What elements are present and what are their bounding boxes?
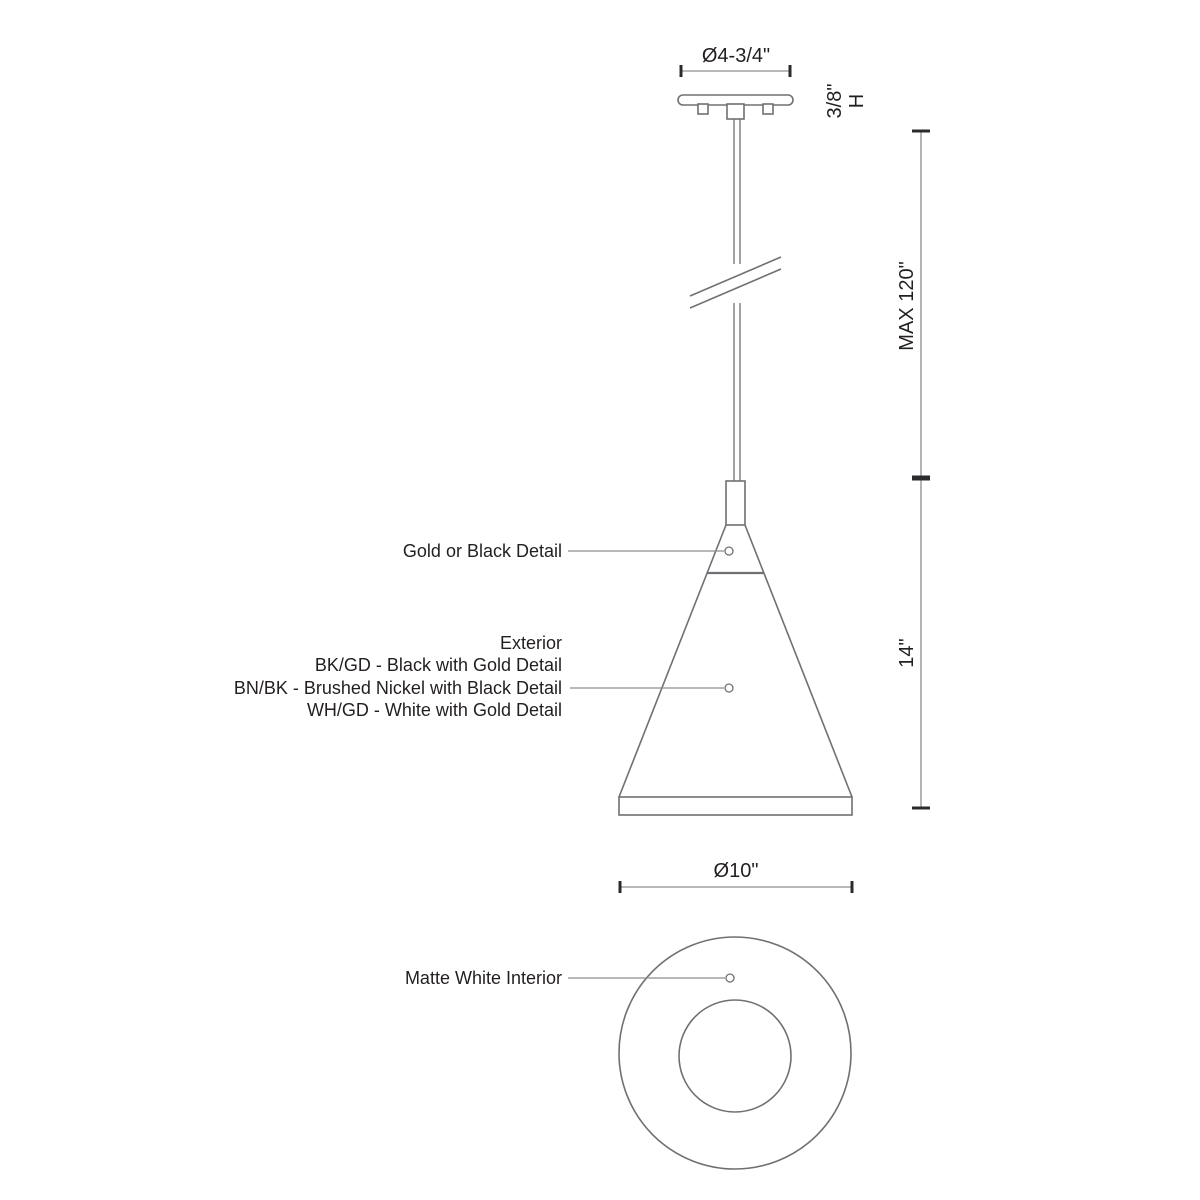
outer-rim-circle: [619, 937, 851, 1169]
exterior-callout: Exterior BK/GD - Black with Gold Detail …: [234, 633, 733, 720]
interior-callout-label: Matte White Interior: [405, 968, 562, 988]
leader-dot: [725, 547, 733, 555]
canopy-height-dimension: 3/8" H: [824, 84, 868, 119]
shade-height-label: 14": [896, 638, 918, 667]
pendant-dimension-drawing: Ø4-3/4" 3/8" H: [0, 0, 1200, 1200]
ceiling-canopy: [678, 95, 793, 119]
canopy-screw-right: [763, 104, 773, 114]
canopy-diameter-dimension: Ø4-3/4": [681, 45, 790, 77]
suspension-cord: [690, 119, 781, 481]
interior-callout: Matte White Interior: [405, 968, 734, 988]
inner-opening-circle: [679, 1000, 791, 1112]
shade-diameter-dimension: Ø10": [620, 860, 852, 893]
shade-side-view: [619, 481, 852, 815]
leader-dot: [726, 974, 734, 982]
cord-break-symbol: [690, 257, 781, 296]
shade-rim: [619, 797, 852, 815]
shade-bottom-view: [619, 937, 851, 1169]
canopy-height-unit-label: H: [846, 94, 868, 108]
detail-callout-label: Gold or Black Detail: [403, 541, 562, 561]
detail-callout: Gold or Black Detail: [403, 541, 733, 561]
max-height-label: MAX 120": [896, 261, 918, 350]
socket-holder: [726, 481, 745, 525]
canopy-diameter-label: Ø4-3/4": [702, 45, 770, 67]
canopy-screw-left: [698, 104, 708, 114]
canopy-stem: [727, 104, 744, 119]
exterior-option-label: WH/GD - White with Gold Detail: [307, 700, 562, 720]
drawing-canvas: Ø4-3/4" 3/8" H: [0, 0, 1200, 1200]
exterior-option-label: BK/GD - Black with Gold Detail: [315, 655, 562, 675]
exterior-title-label: Exterior: [500, 633, 562, 653]
leader-dot: [725, 684, 733, 692]
shade-diameter-label: Ø10": [714, 860, 759, 882]
cone-right-edge: [745, 525, 852, 797]
cord-break-symbol: [690, 269, 781, 308]
canopy-height-value-label: 3/8": [824, 84, 846, 119]
cone-left-edge: [619, 525, 726, 797]
exterior-option-label: BN/BK - Brushed Nickel with Black Detail: [234, 678, 562, 698]
vertical-dimensions: MAX 120" 14": [896, 131, 930, 808]
